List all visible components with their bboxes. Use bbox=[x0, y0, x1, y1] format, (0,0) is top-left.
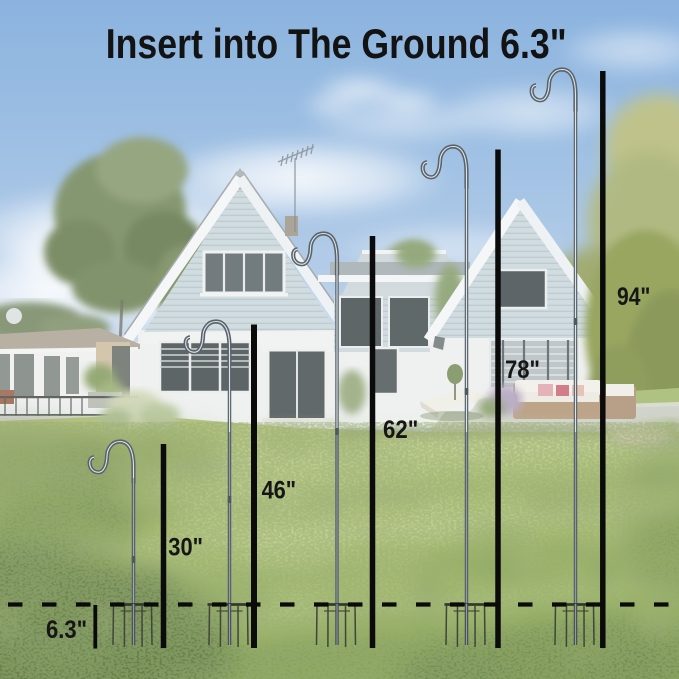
svg-text:94": 94" bbox=[617, 284, 650, 311]
svg-text:6.3": 6.3" bbox=[46, 617, 87, 644]
svg-text:30": 30" bbox=[168, 535, 203, 562]
svg-text:46": 46" bbox=[262, 477, 297, 504]
svg-text:Insert into The Ground 6.3": Insert into The Ground 6.3" bbox=[106, 20, 567, 67]
svg-text:78": 78" bbox=[505, 357, 540, 384]
svg-text:62": 62" bbox=[383, 417, 418, 444]
